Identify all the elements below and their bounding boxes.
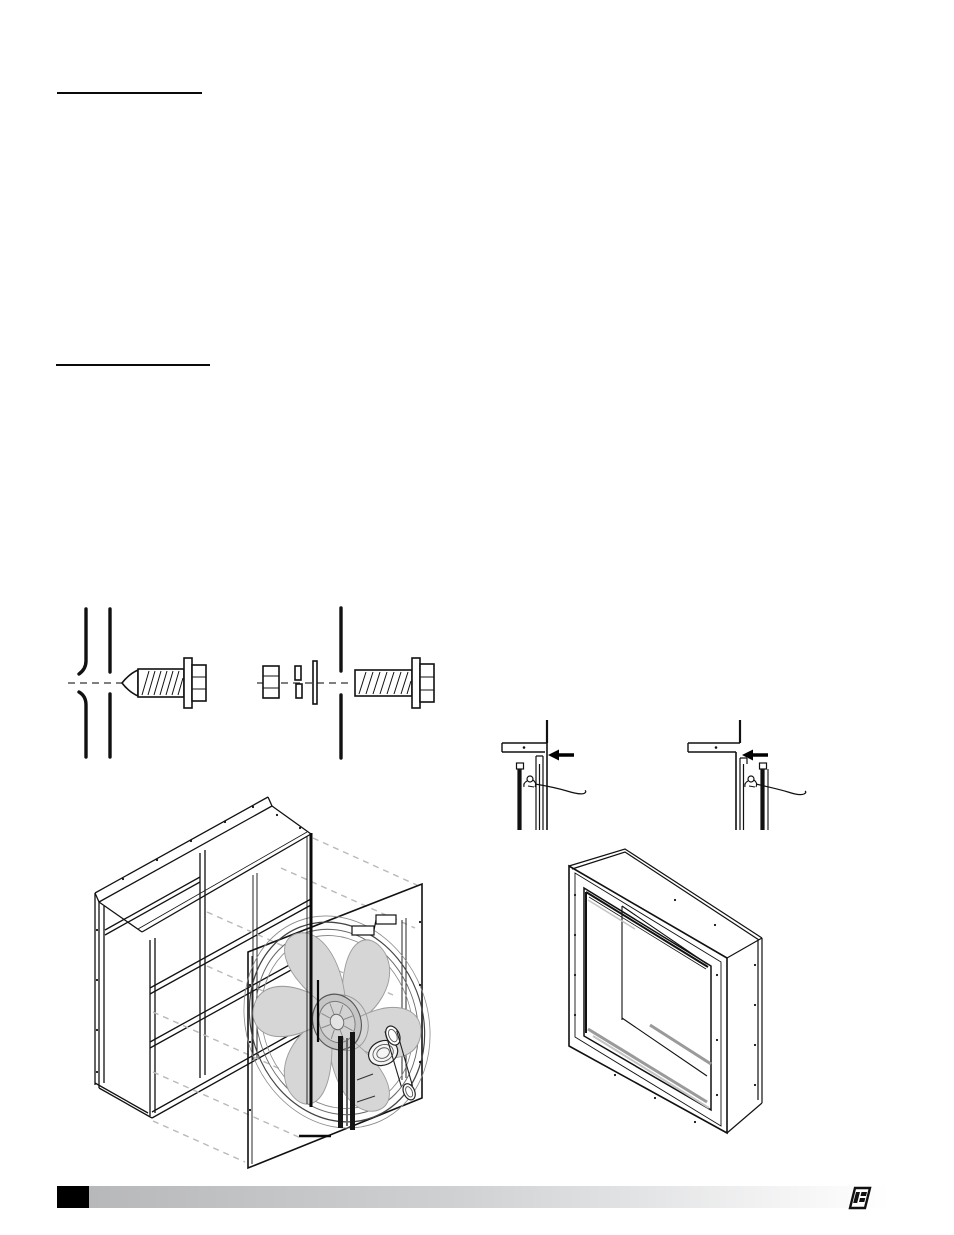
screw-flange (184, 658, 192, 708)
flat-washer (313, 661, 317, 704)
opening-shadow-edge (586, 892, 708, 1033)
logo-bar (861, 1192, 868, 1196)
angle-cap (517, 763, 524, 769)
footer-gradient-bar (89, 1186, 890, 1208)
inner-vertical (150, 938, 155, 1116)
heading-rule-1 (57, 92, 202, 94)
panel-edge (79, 692, 86, 757)
wall-housing-view (555, 840, 800, 1140)
lock-washer (296, 684, 302, 698)
screw-hex-head (192, 665, 206, 701)
channel-lines (536, 756, 543, 830)
heading-rule-2 (56, 364, 210, 366)
exploded-fan-housing-view (85, 780, 455, 1180)
clip-glyph (527, 776, 533, 782)
side-edges (727, 938, 762, 1133)
housing-screw-dots (96, 806, 254, 1073)
left-flange (95, 893, 104, 1088)
hex-nut (263, 666, 279, 698)
interior-back-edges (622, 906, 707, 1076)
stiffener-vertical (253, 873, 257, 1060)
arrow-left (742, 750, 768, 761)
screw-dot (715, 746, 718, 749)
panel-edge (79, 609, 86, 674)
opening (584, 888, 711, 1110)
flange-outer (569, 866, 727, 1133)
screw-dot (523, 746, 526, 749)
joint-detail-a (495, 712, 645, 837)
footer-page-block (57, 1186, 89, 1208)
top-bracket (352, 915, 396, 935)
joint-detail-b (683, 712, 833, 837)
arrow-left (548, 750, 574, 761)
fastener-diagram-screw (60, 595, 260, 770)
document-page (0, 0, 954, 1235)
bolt-hex-head (420, 664, 434, 702)
bolt-flange (412, 658, 420, 708)
channel-lines (740, 758, 747, 830)
mount-channel (346, 1038, 348, 1126)
clip-glyph (748, 776, 754, 782)
top-strip (688, 743, 740, 752)
logo-bar (859, 1198, 865, 1202)
opening-seam (589, 897, 706, 969)
angle-cap (760, 763, 767, 769)
flange-inner (575, 873, 721, 1126)
roof-seam (138, 832, 307, 929)
brand-logo-icon (848, 1186, 872, 1210)
clip-glyph (745, 780, 757, 787)
lock-washer (295, 666, 301, 680)
fastener-diagram-bolt (255, 595, 460, 770)
wall-housing (95, 797, 311, 1118)
mount-channel (338, 1036, 343, 1128)
screw-tip (122, 670, 138, 696)
mount-channel (350, 1032, 355, 1130)
clip-glyph (524, 780, 536, 787)
bottom-left-edges (95, 1083, 152, 1118)
fan-assembly (214, 889, 455, 1156)
